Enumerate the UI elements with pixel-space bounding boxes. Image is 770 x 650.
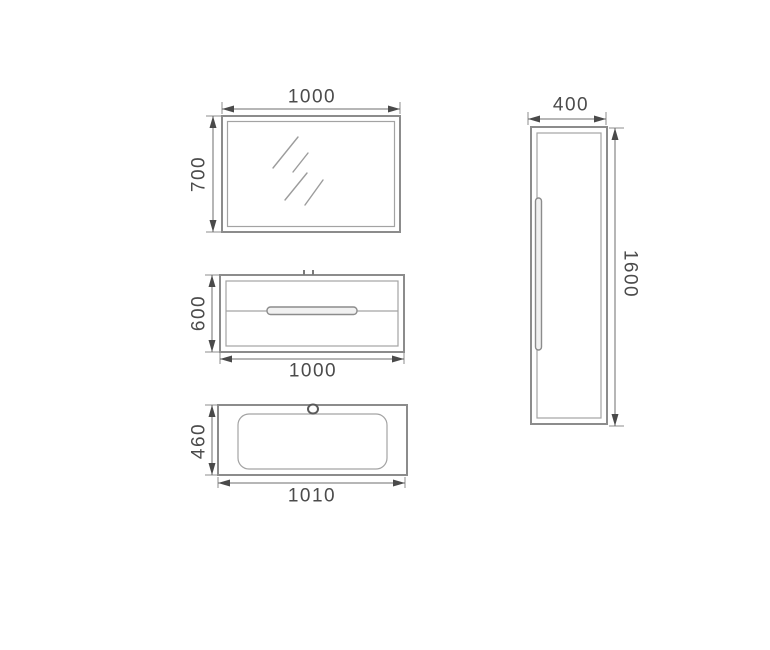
- vanity-width-label: 1000: [289, 362, 337, 381]
- vanity-height-label: 600: [190, 295, 209, 331]
- basin-width-label: 1010: [288, 487, 336, 506]
- side-cabinet-door-panel: [537, 133, 601, 418]
- faucet-hole: [308, 405, 318, 414]
- furniture-dimension-drawing: [0, 0, 770, 650]
- arrow-left-icon: [222, 106, 234, 113]
- arrow-up-icon: [612, 128, 619, 140]
- arrow-right-icon: [393, 480, 405, 487]
- arrow-down-icon: [209, 340, 216, 352]
- mirror-inner-frame: [228, 122, 395, 227]
- glass-hatch-line: [305, 180, 323, 205]
- arrow-left-icon: [220, 356, 232, 363]
- side-cabinet-width-label: 400: [553, 96, 589, 115]
- side-cabinet-height-label: 1600: [621, 250, 640, 298]
- side-cabinet-front-view: [531, 127, 607, 424]
- arrow-up-icon: [210, 116, 217, 128]
- arrow-down-icon: [210, 220, 217, 232]
- arrow-right-icon: [594, 116, 606, 123]
- vanity-drawer-handle: [267, 307, 357, 315]
- arrow-right-icon: [388, 106, 400, 113]
- arrow-left-icon: [528, 116, 540, 123]
- side-cabinet-door-handle: [536, 198, 542, 350]
- basin-top-view: [218, 405, 407, 476]
- glass-hatch-line: [273, 137, 298, 168]
- arrow-down-icon: [612, 414, 619, 426]
- arrow-down-icon: [209, 463, 216, 475]
- glass-hatch-line: [293, 153, 308, 172]
- arrow-left-icon: [218, 480, 230, 487]
- arrow-up-icon: [209, 275, 216, 287]
- basin-counter-outline: [218, 405, 407, 475]
- mirror-width-label: 1000: [288, 88, 336, 107]
- mirror-glass-hatch-marks: [273, 137, 323, 205]
- vanity-cabinet-front-view: [220, 270, 404, 352]
- arrow-right-icon: [392, 356, 404, 363]
- arrow-up-icon: [209, 405, 216, 417]
- glass-hatch-line: [285, 173, 307, 200]
- technical-drawing-canvas: 1000 700 600 1000 460 1010 400 1600: [0, 0, 770, 650]
- mirror-height-label: 700: [190, 156, 209, 192]
- basin-bowl-outline: [238, 414, 387, 469]
- side-cabinet-outer-frame: [531, 127, 607, 424]
- mirror-outer-frame: [222, 116, 400, 232]
- mirror-front-view: [222, 116, 400, 232]
- basin-depth-label: 460: [190, 423, 209, 459]
